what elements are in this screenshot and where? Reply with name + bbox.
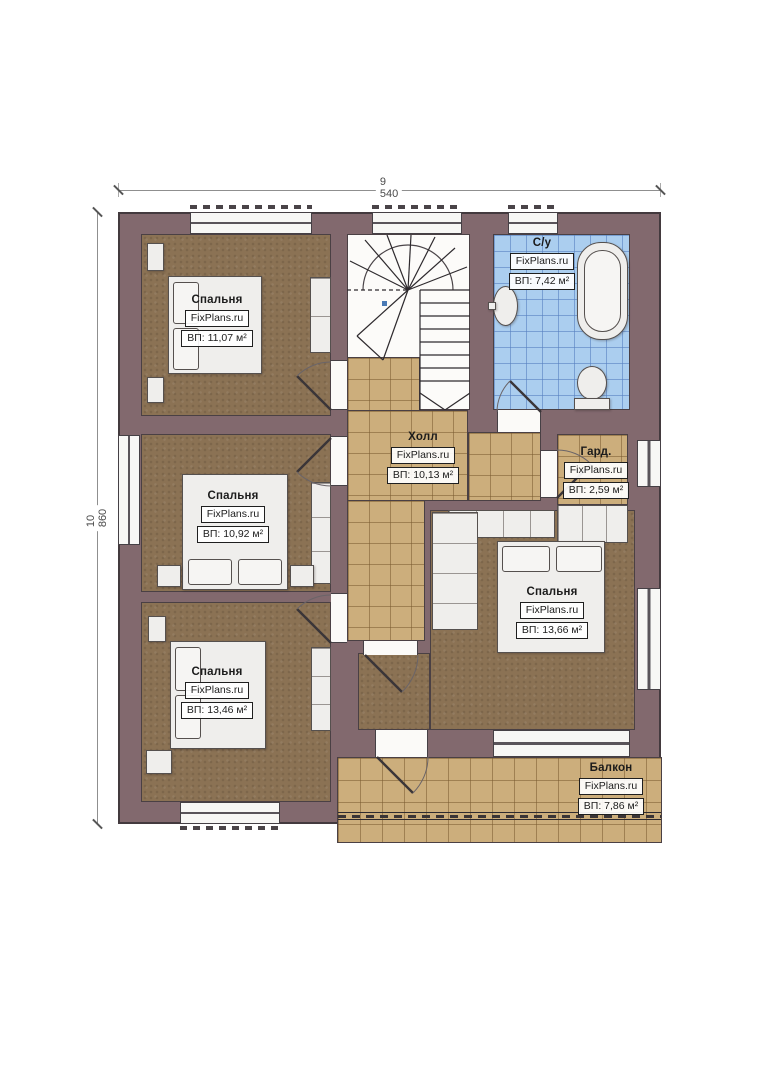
room-name: Балкон: [590, 762, 633, 775]
room-watermark: FixPlans.ru: [201, 506, 266, 523]
room-area: ВП: 10,92 м²: [197, 526, 269, 543]
room-area: ВП: 13,66 м²: [516, 622, 588, 639]
room-watermark: FixPlans.ru: [391, 447, 456, 464]
dimension-left-label: 10 860: [85, 505, 109, 531]
room-name: С/у: [533, 237, 552, 250]
room-label-bedroom-mid-left: Спальня FixPlans.ru ВП: 10,92 м²: [175, 490, 291, 543]
room-area: ВП: 13,46 м²: [181, 702, 253, 719]
room-watermark: FixPlans.ru: [510, 253, 575, 270]
room-area: ВП: 10,13 м²: [387, 467, 459, 484]
room-name: Холл: [408, 431, 438, 444]
room-label-bedroom-top-left: Спальня FixPlans.ru ВП: 11,07 м²: [159, 294, 275, 347]
room-label-bathroom: С/у FixPlans.ru ВП: 7,42 м²: [484, 237, 600, 290]
window-sill-ticks: [372, 205, 462, 209]
window-sill-ticks: [508, 205, 558, 209]
floor-plan-page: 9 540 10 860: [0, 0, 763, 1080]
room-label-balcony: Балкон FixPlans.ru ВП: 7,86 м²: [553, 762, 669, 815]
door-arc: [297, 362, 591, 793]
room-area: ВП: 7,86 м²: [578, 798, 644, 815]
room-watermark: FixPlans.ru: [520, 602, 585, 619]
dimension-top-label: 9 540: [376, 176, 402, 200]
room-name: Спальня: [191, 666, 242, 679]
room-watermark: FixPlans.ru: [185, 682, 250, 699]
room-name: Спальня: [191, 294, 242, 307]
room-area: ВП: 2,59 м²: [563, 482, 629, 499]
window-sill-ticks: [190, 205, 312, 209]
window-sill-ticks: [180, 826, 280, 830]
room-area: ВП: 7,42 м²: [509, 273, 575, 290]
room-name: Спальня: [207, 490, 258, 503]
room-watermark: FixPlans.ru: [579, 778, 644, 795]
room-label-bedroom-right: Спальня FixPlans.ru ВП: 13,66 м²: [494, 586, 610, 639]
room-watermark: FixPlans.ru: [185, 310, 250, 327]
room-label-hall: Холл FixPlans.ru ВП: 10,13 м²: [365, 431, 481, 484]
room-name: Спальня: [526, 586, 577, 599]
room-name: Гард.: [581, 446, 612, 459]
room-area: ВП: 11,07 м²: [181, 330, 253, 347]
room-watermark: FixPlans.ru: [564, 462, 629, 479]
room-label-bedroom-bottom-left: Спальня FixPlans.ru ВП: 13,46 м²: [159, 666, 275, 719]
room-label-wardrobe: Гард. FixPlans.ru ВП: 2,59 м²: [538, 446, 654, 499]
